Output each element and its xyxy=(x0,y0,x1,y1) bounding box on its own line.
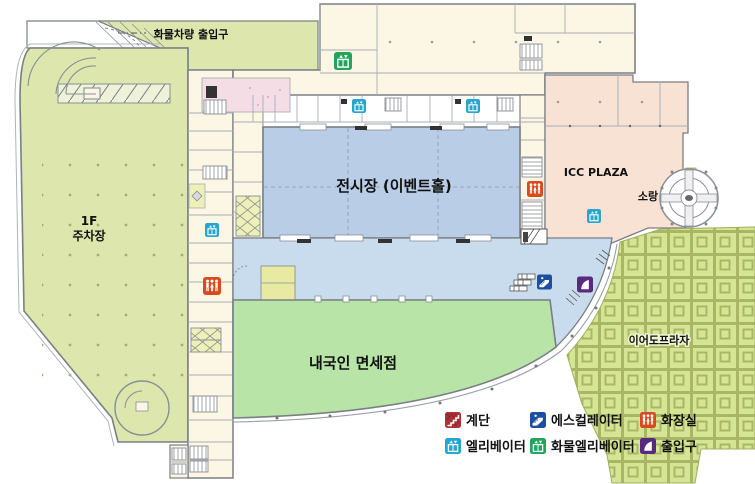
legend-entrance-label: 출입구 xyxy=(661,439,697,455)
lobby-stair-shaft xyxy=(521,229,547,244)
sorang-label: 소랑 xyxy=(638,190,658,203)
restroom-icon xyxy=(527,181,543,197)
icc-plaza-columns xyxy=(552,90,682,104)
legend-escalator-icon xyxy=(530,412,546,428)
ieodo-plaza-label: 이어도프라자 xyxy=(629,333,691,347)
elevator-icon xyxy=(587,209,601,223)
parking-ramp-circle xyxy=(115,381,169,435)
escalator-block xyxy=(191,328,221,352)
legend-elevator-icon xyxy=(445,438,461,454)
parking-label-line1: 1F xyxy=(81,214,98,228)
escalator-icon xyxy=(537,275,552,290)
legend-stairs-icon xyxy=(445,412,461,428)
sorang-pavilion xyxy=(660,169,718,227)
floor-map: 화물차량 출입구 1F 주차장 전시장 (이벤트홀) 내국인 면세점 ICC P… xyxy=(0,0,755,484)
legend-entrance-icon xyxy=(640,438,656,454)
elevator-icon xyxy=(466,99,480,113)
entrance-icon xyxy=(577,277,593,293)
legend-restroom-icon xyxy=(640,412,656,428)
parking-column-dots xyxy=(42,158,187,378)
duty-free-label: 내국인 면세점 xyxy=(309,354,397,372)
legend-elevator-label: 엘리베이터 xyxy=(466,439,526,455)
restroom-icon xyxy=(203,277,221,295)
elevator-icon xyxy=(352,99,366,113)
elevator-icon xyxy=(205,223,219,237)
parking-label-line2: 주차장 xyxy=(72,228,105,243)
exhibition-hall-label: 전시장 (이벤트홀) xyxy=(336,177,452,195)
north-building-columns xyxy=(385,38,630,70)
icc-plaza-label: ICC PLAZA xyxy=(564,166,629,179)
cargo-entrance-label: 화물차량 출입구 xyxy=(154,27,229,41)
legend-cargo-elevator-label: 화물엘리베이터 xyxy=(551,439,635,455)
cargo-elevator-icon xyxy=(334,52,352,70)
legend-escalator-label: 에스컬레이터 xyxy=(551,413,623,429)
legend-restroom-label: 화장실 xyxy=(661,413,697,429)
legend-cargo-elevator-icon xyxy=(530,438,546,454)
legend-stairs-label: 계단 xyxy=(466,413,490,429)
